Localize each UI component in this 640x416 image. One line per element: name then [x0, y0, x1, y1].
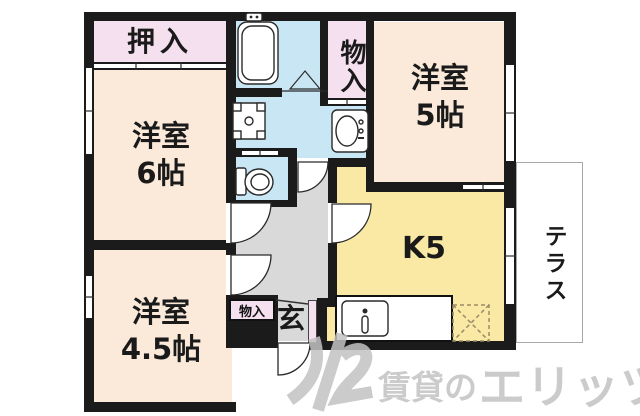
label-entrance: 玄: [272, 301, 310, 337]
door-gap-kitchen: [328, 203, 337, 243]
wall-storage-top-left: [320, 14, 328, 106]
hallway-floor: [234, 204, 332, 300]
wall-hall-kitchen-upper: [328, 160, 337, 204]
toilet-floor: [232, 155, 290, 205]
sliding-door-toilet: [242, 149, 278, 157]
door-gap-washroom: [297, 158, 328, 167]
label-oshiire: 押入: [92, 24, 228, 60]
label-western45-name: 洋室: [94, 294, 228, 331]
window-western45: [84, 276, 94, 318]
label-western6-size: 6帖: [96, 155, 226, 192]
label-western6: 洋室 6帖: [96, 118, 226, 192]
label-kitchen: K5: [386, 230, 462, 268]
opening-western5-kitchen: [463, 183, 504, 191]
door-gap-entrance: [278, 341, 309, 350]
label-western6-name: 洋室: [96, 118, 226, 155]
wall-toilet-right: [288, 148, 297, 207]
watermark-prefix: 賃貸の: [378, 371, 477, 404]
floor-plan: 押入 洋室 6帖 洋室 5帖 洋室 4.5帖 K5 テラス 物入 物入 玄 賃貸…: [0, 0, 640, 416]
kitchen-floor-sliver: [327, 305, 337, 341]
label-storage-top: 物入: [331, 24, 367, 110]
window-western6: [84, 68, 94, 154]
label-storage-hall: 物入: [229, 299, 275, 321]
wall-room6-room45: [90, 240, 232, 250]
label-western5: 洋室 5帖: [374, 60, 506, 134]
watermark-brand: エリッツ: [479, 364, 640, 410]
door-gap-western45: [226, 255, 236, 295]
hallway-door-nook-floor: [295, 165, 332, 207]
wall-kitchen-bottom: [309, 341, 507, 350]
wall-bottom-left: [84, 402, 236, 412]
window-kitchen-terrace: [504, 208, 516, 304]
label-western45-size: 4.5帖: [94, 331, 228, 368]
label-western5-name: 洋室: [374, 60, 506, 97]
label-western45: 洋室 4.5帖: [94, 294, 228, 368]
label-terrace: テラス: [533, 206, 567, 322]
door-gap-western6: [226, 203, 236, 243]
wall-hall-kitchen-lower: [328, 243, 337, 305]
sliding-door-oshiire: [94, 62, 226, 70]
wall-bath-bottom: [230, 88, 282, 97]
bathroom-floor: [232, 16, 328, 96]
label-western5-size: 5帖: [374, 97, 506, 134]
wall-top: [84, 12, 516, 21]
